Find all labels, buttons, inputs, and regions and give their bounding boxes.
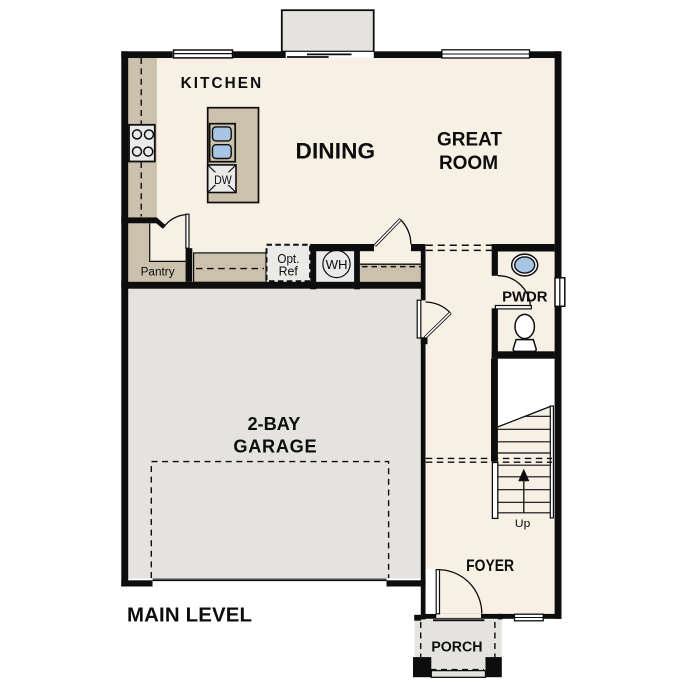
svg-text:PWDR: PWDR xyxy=(502,289,548,305)
svg-text:ROOM: ROOM xyxy=(439,153,498,174)
svg-text:GARAGE: GARAGE xyxy=(233,436,316,456)
svg-text:WH: WH xyxy=(326,258,348,272)
svg-text:DINING: DINING xyxy=(296,139,376,164)
svg-text:Ref: Ref xyxy=(279,265,299,279)
svg-text:Pantry: Pantry xyxy=(141,267,175,279)
svg-text:PORCH: PORCH xyxy=(431,639,482,655)
svg-text:GREAT: GREAT xyxy=(437,129,502,150)
svg-text:Up: Up xyxy=(515,518,530,530)
svg-text:FOYER: FOYER xyxy=(466,556,514,575)
svg-text:MAIN LEVEL: MAIN LEVEL xyxy=(127,605,252,627)
svg-text:2-BAY: 2-BAY xyxy=(247,414,300,434)
svg-text:DW: DW xyxy=(214,173,232,187)
